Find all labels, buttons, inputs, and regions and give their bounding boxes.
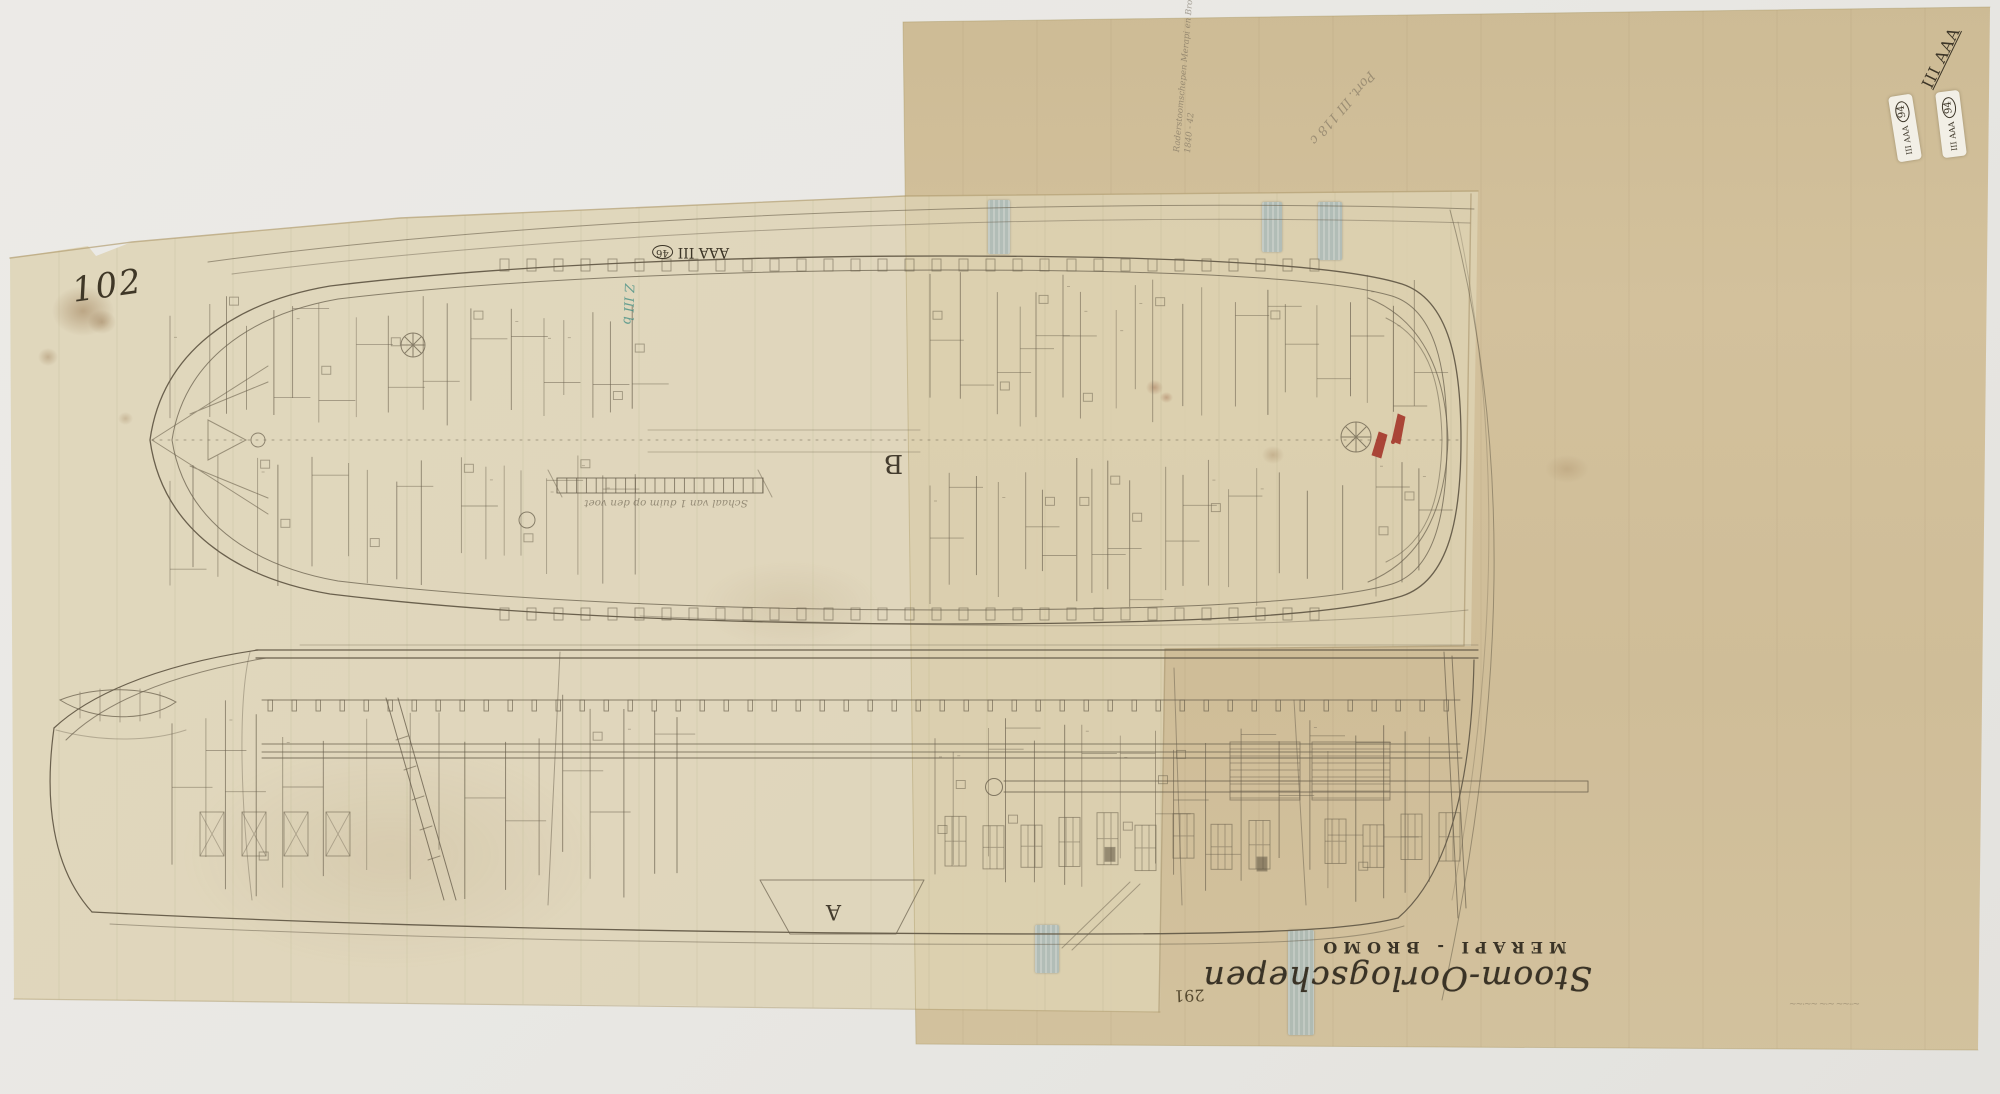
circled-number: 46 <box>652 245 673 259</box>
deck-plan-letter: B <box>884 448 903 478</box>
main-title: Stoom-Oorlogschepen <box>1292 960 1592 996</box>
hinge-tab <box>1035 925 1059 973</box>
profile-letter: A <box>826 900 841 924</box>
scale-caption: Schaal van 1 duim op den voet <box>566 497 766 509</box>
sticker-circled-number: 94 <box>1941 96 1957 118</box>
illegible-pencil-inscription: ~··~~ ~·~ ~~·~~ <box>1790 998 1860 1008</box>
hinge-tab <box>988 200 1010 254</box>
ship-names: MERAPI - BROMO <box>1292 938 1592 957</box>
sticker-circled-number: 94 <box>1894 100 1911 123</box>
archive-mark-center: AAA III 46 <box>652 244 729 260</box>
hinge-tab <box>1318 202 1342 260</box>
hinge-tab <box>1262 202 1282 252</box>
sticker-text: III AAA <box>1946 121 1959 151</box>
scanned-ship-plan: 102 291 AAA III 46 Z III b III AAA III A… <box>0 0 2000 1094</box>
sticker-text: III AAA <box>1900 125 1913 155</box>
teal-shelfmark: Z III b <box>620 283 636 325</box>
archive-mark-text: AAA III <box>678 244 729 260</box>
title-block: Stoom-Oorlogschepen MERAPI - BROMO <box>1292 938 1592 996</box>
small-inventory-number: 291 <box>1174 985 1205 1005</box>
